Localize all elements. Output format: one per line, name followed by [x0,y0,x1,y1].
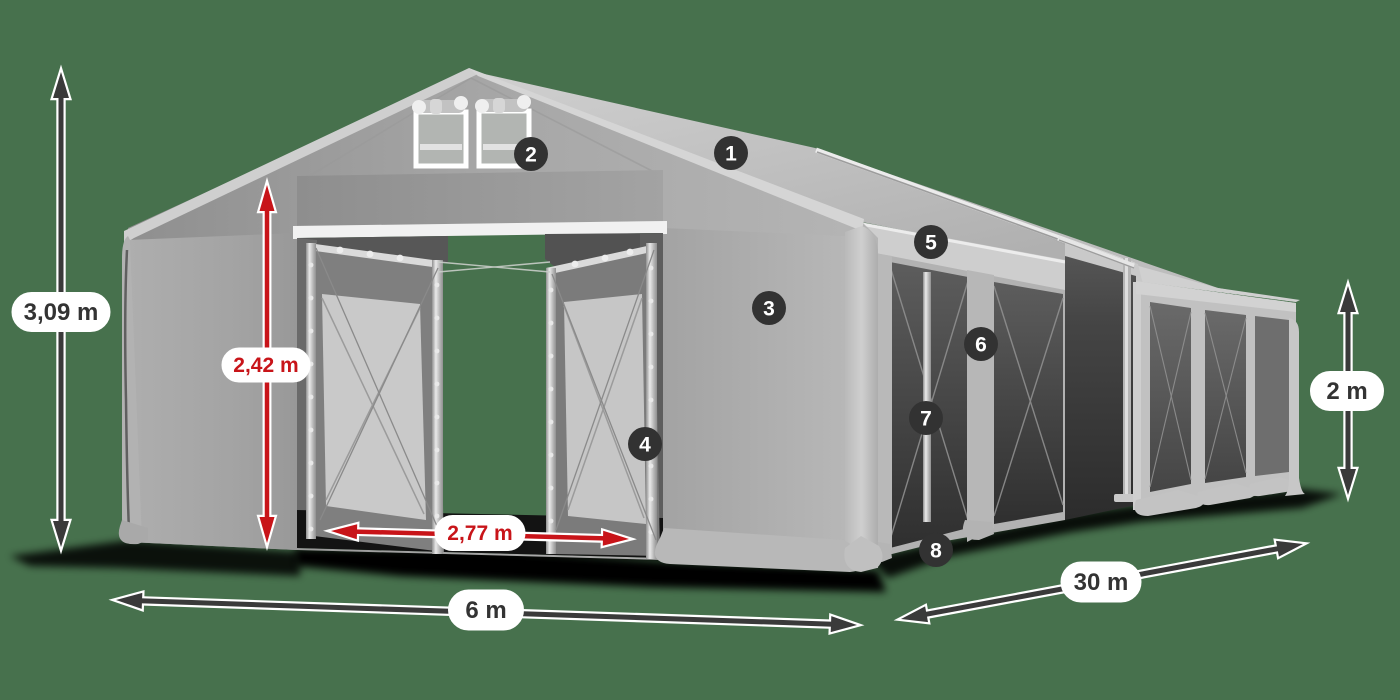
svg-text:6: 6 [975,334,987,357]
svg-text:3: 3 [763,298,775,321]
svg-text:30 m: 30 m [1074,569,1129,596]
svg-text:8: 8 [930,540,942,563]
svg-text:6 m: 6 m [465,597,506,624]
svg-text:2 m: 2 m [1326,378,1367,405]
svg-text:2,42 m: 2,42 m [233,354,298,377]
svg-text:4: 4 [639,434,651,457]
svg-text:2: 2 [525,144,537,167]
svg-text:2,77 m: 2,77 m [447,522,512,545]
svg-text:1: 1 [725,143,737,166]
svg-text:3,09 m: 3,09 m [24,299,99,326]
svg-text:5: 5 [925,232,937,255]
svg-text:7: 7 [920,408,932,431]
